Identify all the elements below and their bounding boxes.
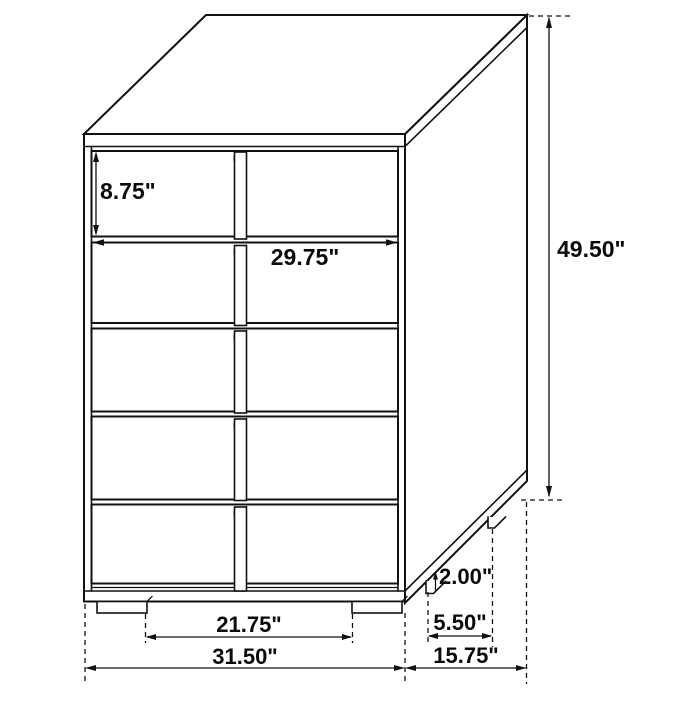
dim-label-interior-width: 29.75" (271, 244, 339, 270)
arrow-up-icon (546, 17, 552, 29)
dim-label-overall-width: 31.50" (212, 644, 277, 669)
front-foot-left (97, 602, 147, 614)
dim-overall-depth: 15.75" (405, 643, 526, 671)
dim-back-foot-inset: 5.50" (428, 610, 493, 639)
arrow-right-icon (342, 634, 352, 640)
drawer-pull-3 (235, 331, 247, 413)
dim-label-back-foot-inset: 5.50" (433, 610, 486, 635)
drawer-pull-5 (235, 507, 247, 591)
arrow-left-icon (85, 665, 96, 671)
dim-label-overall-height: 49.50" (557, 236, 625, 262)
drawer-pull-1 (235, 152, 247, 239)
chest-dimension-diagram: 8.75" 29.75" 49.50" 2.00" 5.50" (0, 0, 700, 700)
arrow-left-icon (405, 665, 416, 671)
drawer-pulls (234, 152, 247, 592)
arrow-left-icon (146, 634, 156, 640)
arrow-right-icon (394, 665, 405, 671)
arrow-down-icon (546, 486, 552, 498)
dim-label-top-drawer-height: 8.75" (100, 178, 156, 204)
drawer-pull-4 (235, 419, 247, 501)
side-foot-back (488, 517, 506, 528)
front-foot-right (352, 602, 402, 614)
drawer-pull-2 (235, 246, 247, 326)
dim-foot-height: 2.00" (433, 564, 492, 591)
dim-overall-width: 31.50" (85, 644, 404, 671)
dimension-diagram-page: 8.75" 29.75" 49.50" 2.00" 5.50" (0, 0, 700, 700)
arrow-right-icon (516, 665, 526, 671)
dim-foot-span: 21.75" (146, 612, 352, 640)
dim-overall-height: 49.50" (546, 17, 625, 498)
dim-label-overall-depth: 15.75" (433, 643, 498, 668)
cabinet (84, 15, 527, 613)
dim-label-foot-span: 21.75" (216, 612, 281, 637)
dim-label-foot-height: 2.00" (439, 564, 492, 589)
